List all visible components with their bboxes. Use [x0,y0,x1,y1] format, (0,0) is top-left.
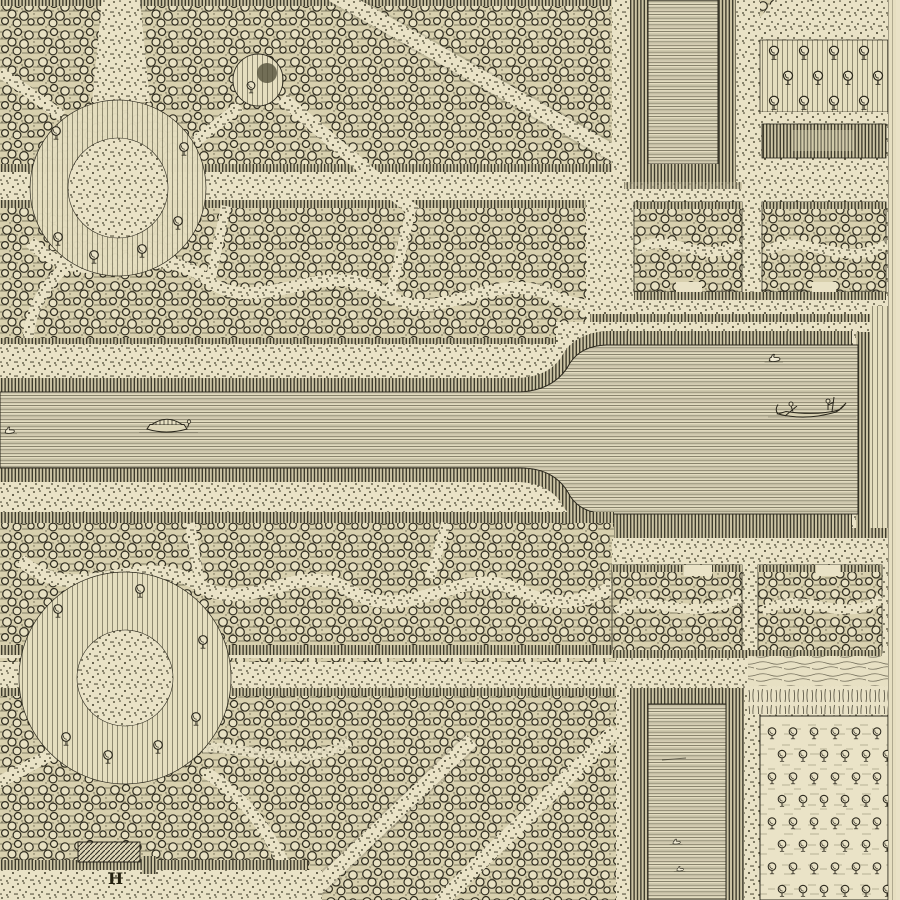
rond-point-lower-center [77,630,173,726]
rond-point-upper-center [68,138,168,238]
rond-point-upper [30,100,206,276]
pool-upper [624,0,742,189]
upper-right-column [590,0,888,344]
lower-right-column [616,656,891,900]
parcels-below-basin [612,538,888,660]
garden-building [78,842,140,862]
upper-left-bosquet-quarter [0,0,622,348]
garden-plan-svg: H [0,0,900,900]
terrace-slope [748,656,888,686]
key-letter-h: H [108,869,123,888]
orchard-lower [760,716,891,900]
pool-lower-water [648,704,726,900]
pool-lower [630,688,744,900]
grass-bank [748,686,888,714]
pool-upper-water [648,0,718,164]
vertical-allee-upper [92,0,150,102]
plate-edge-margin [888,0,900,900]
orchard-upper [760,40,888,112]
engraved-garden-map: H [0,0,900,900]
rond-point-lower [19,572,231,784]
oval-cabinet [233,54,283,106]
